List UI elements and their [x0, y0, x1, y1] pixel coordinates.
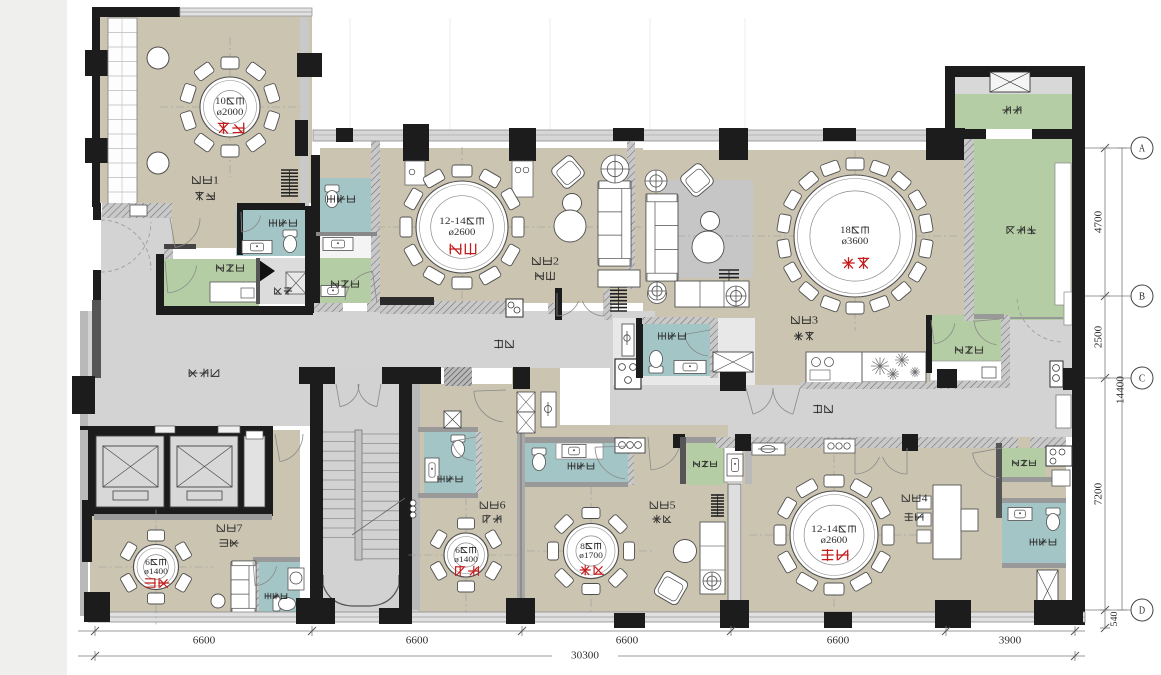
svg-text:3900: 3900 — [999, 635, 1021, 646]
svg-text:7: 7 — [237, 524, 243, 535]
svg-text:18: 18 — [840, 226, 851, 236]
svg-text:3: 3 — [812, 315, 819, 327]
svg-text:A: A — [1139, 143, 1145, 155]
svg-text:6: 6 — [500, 501, 506, 512]
svg-text:ø1700: ø1700 — [579, 550, 603, 560]
svg-text:6600: 6600 — [616, 635, 638, 646]
svg-text:4700: 4700 — [1093, 211, 1104, 233]
svg-text:6600: 6600 — [193, 635, 215, 646]
svg-text:C: C — [1139, 373, 1145, 385]
svg-text:ø2600: ø2600 — [821, 536, 848, 546]
svg-text:4: 4 — [922, 494, 929, 505]
svg-text:D: D — [1139, 605, 1145, 617]
svg-text:12-14: 12-14 — [811, 525, 838, 535]
svg-text:2: 2 — [553, 256, 559, 268]
svg-text:1: 1 — [213, 175, 219, 187]
svg-text:ø3600: ø3600 — [842, 237, 869, 247]
svg-text:30300: 30300 — [571, 650, 599, 661]
svg-text:5: 5 — [670, 501, 676, 512]
svg-text:ø2000: ø2000 — [217, 108, 244, 118]
svg-text:B: B — [1139, 291, 1145, 303]
svg-text:14400: 14400 — [1115, 376, 1126, 404]
svg-text:ø1400: ø1400 — [454, 554, 478, 564]
svg-text:540: 540 — [1109, 611, 1119, 627]
svg-text:ø2600: ø2600 — [449, 228, 476, 238]
svg-text:12-14: 12-14 — [439, 217, 466, 227]
svg-text:6600: 6600 — [827, 635, 849, 646]
svg-text:7200: 7200 — [1093, 483, 1104, 505]
svg-text:ø1400: ø1400 — [144, 566, 168, 576]
svg-text:2500: 2500 — [1093, 326, 1104, 348]
svg-text:10: 10 — [215, 97, 226, 107]
svg-text:6600: 6600 — [406, 635, 428, 646]
